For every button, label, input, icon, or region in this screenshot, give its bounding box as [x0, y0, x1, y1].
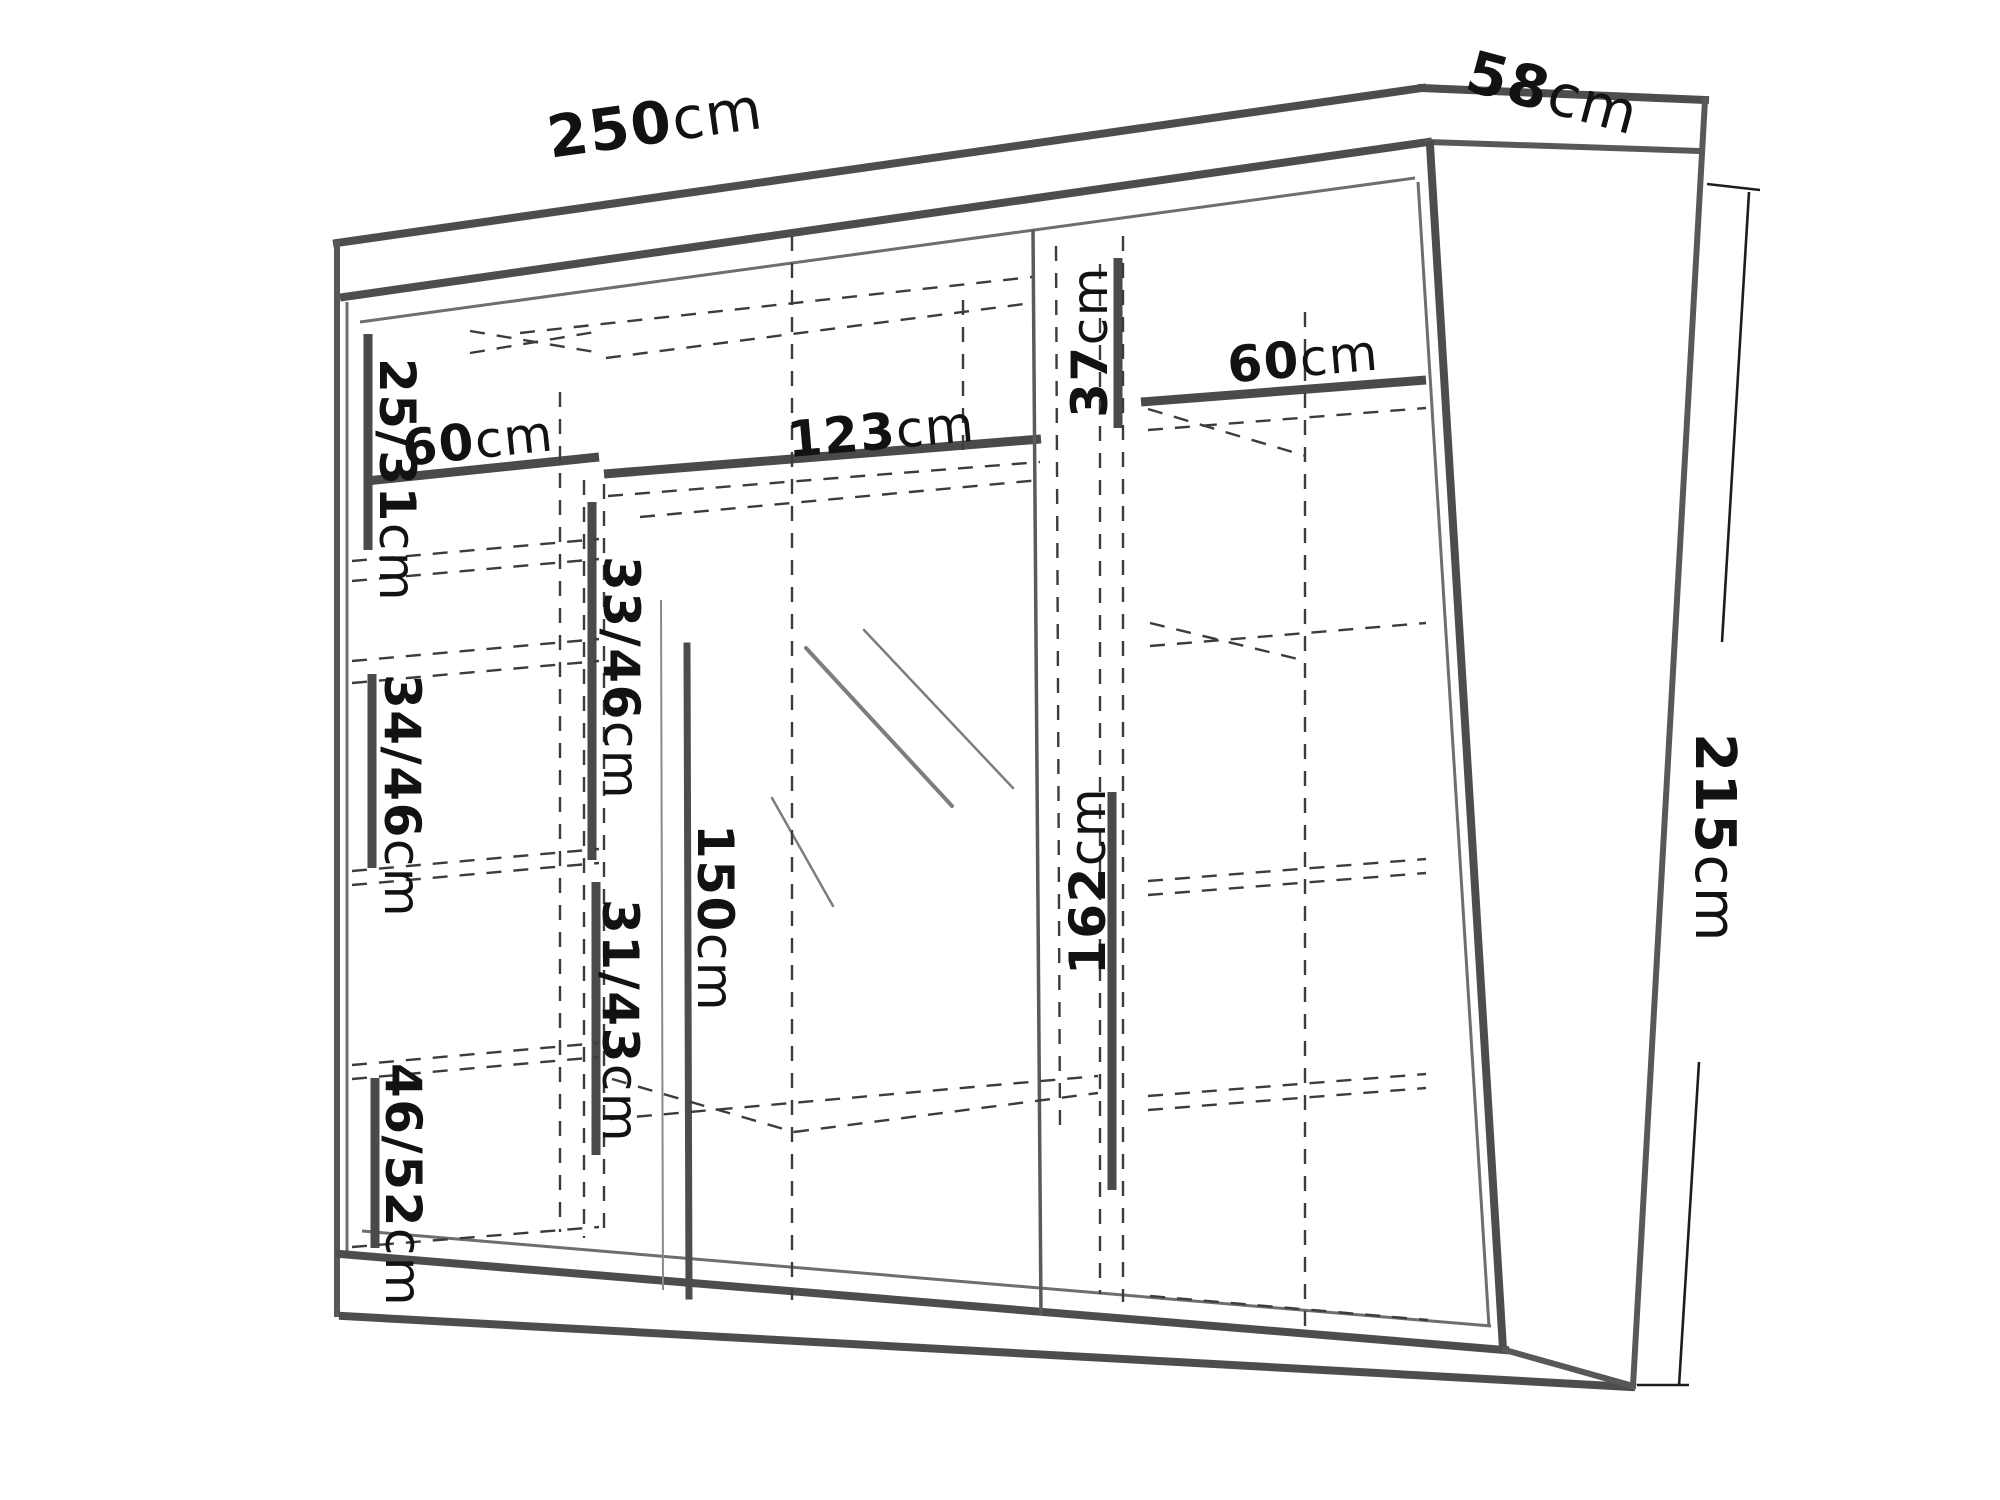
hidden-shelf-edge: [1148, 859, 1426, 881]
mirror-reflection-stroke: [772, 798, 833, 906]
hidden-top-edge: [520, 277, 1032, 333]
hidden-shelf-edge: [352, 639, 599, 661]
mirror-door-left-gap-line: [661, 600, 663, 1290]
hidden-shelf-edge: [1148, 1088, 1426, 1110]
dimension-label-compartment-162: 162cm: [1059, 787, 1117, 975]
base-front-bottom-edge: [343, 1316, 1631, 1387]
hidden-shelf-edge: [352, 1043, 599, 1065]
dimension-label-compartment-46-52: 46/52cm: [374, 1063, 432, 1307]
side-panel-top-edge: [1428, 142, 1700, 151]
dimension-label-width-250: 250cm: [543, 74, 767, 172]
dimension-label-compartment-31-43: 31/43cm: [591, 899, 649, 1143]
hidden-shelf-edge: [1148, 408, 1426, 430]
hidden-shelf-edge: [1148, 1074, 1426, 1096]
mirror-reflection-stroke: [806, 648, 952, 806]
hidden-shelf-edge: [1150, 623, 1306, 661]
hidden-floor-edge: [610, 1076, 1098, 1119]
mirror-reflection-stroke: [864, 630, 1013, 788]
hidden-shelf-edge: [640, 480, 1040, 517]
opening-top-edge: [360, 178, 1415, 322]
right-inner-edge: [1418, 182, 1489, 1327]
dimension-tick-top: [1707, 184, 1760, 190]
dimension-label-compartment-37: 37cm: [1061, 266, 1119, 418]
dimension-label-height-215: 215cm: [1682, 733, 1747, 943]
dimension-line-upper: [1722, 192, 1749, 642]
wardrobe-dimension-diagram: 250cm58cm215cm60cm25/31cm33/46cm123cm37c…: [0, 0, 2000, 1500]
hidden-top-edge: [606, 303, 1032, 358]
dimension-label-shelf-123: 123cm: [785, 395, 977, 469]
back-edge-vertical: [1056, 246, 1060, 1128]
mirror-door-right-edge: [1033, 230, 1041, 1315]
right-front-corner-edge: [1430, 145, 1503, 1349]
dimension-label-compartment-34-46: 34/46cm: [373, 674, 431, 918]
dimension-label-compartment-25-31: 25/31cm: [368, 358, 426, 602]
dimension-label-depth-58: 58cm: [1459, 37, 1646, 148]
mirror-door: [661, 230, 1041, 1315]
diagram-svg: 250cm58cm215cm60cm25/31cm33/46cm123cm37c…: [0, 0, 2000, 1500]
dimension-label-compartment-33-46: 33/46cm: [592, 556, 650, 800]
hidden-shelf-edge: [1148, 873, 1426, 895]
dimension-label-mirror-150: 150cm: [686, 824, 744, 1012]
dimension-line-lower: [1679, 1062, 1699, 1386]
hidden-shelf-edge: [1150, 623, 1426, 646]
cabinet-outline: [337, 88, 1705, 1387]
hidden-shelf-edge: [1148, 409, 1306, 456]
base-front-top-edge: [340, 1254, 1505, 1350]
